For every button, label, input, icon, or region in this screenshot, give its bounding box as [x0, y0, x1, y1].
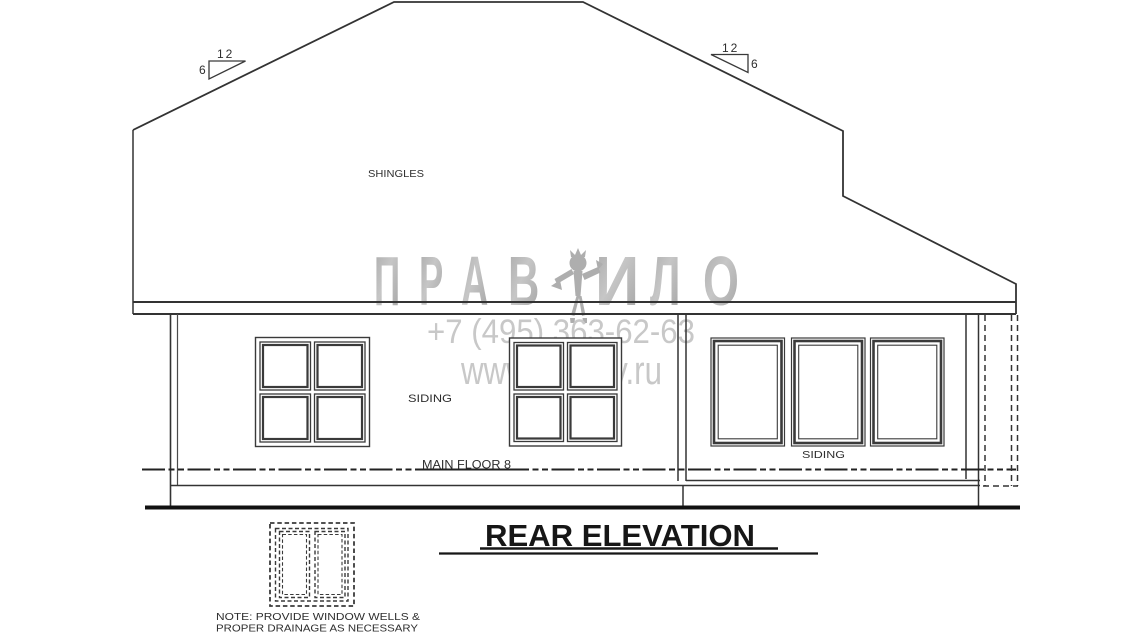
svg-text:В: В [508, 242, 539, 320]
svg-text:SIDING: SIDING [802, 449, 845, 461]
svg-text:SIDING: SIDING [408, 393, 452, 405]
svg-text:SHINGLES: SHINGLES [368, 168, 424, 180]
svg-text:12: 12 [722, 41, 739, 55]
svg-text:О: О [703, 241, 739, 320]
svg-text:6: 6 [199, 63, 206, 77]
svg-text:Р: Р [419, 242, 443, 320]
svg-text:И: И [595, 241, 639, 320]
svg-text:MAIN FLOOR 8: MAIN FLOOR 8 [422, 458, 511, 472]
svg-text:Л: Л [650, 242, 680, 320]
svg-text:PROPER DRAINAGE AS NECESSARY: PROPER DRAINAGE AS NECESSARY [216, 623, 418, 633]
svg-text:NOTE: PROVIDE WINDOW WELLS &: NOTE: PROVIDE WINDOW WELLS & [216, 611, 420, 623]
svg-text:П: П [374, 242, 400, 320]
svg-text:6: 6 [751, 57, 758, 71]
svg-text:А: А [461, 242, 488, 320]
svg-text:12: 12 [217, 47, 234, 61]
